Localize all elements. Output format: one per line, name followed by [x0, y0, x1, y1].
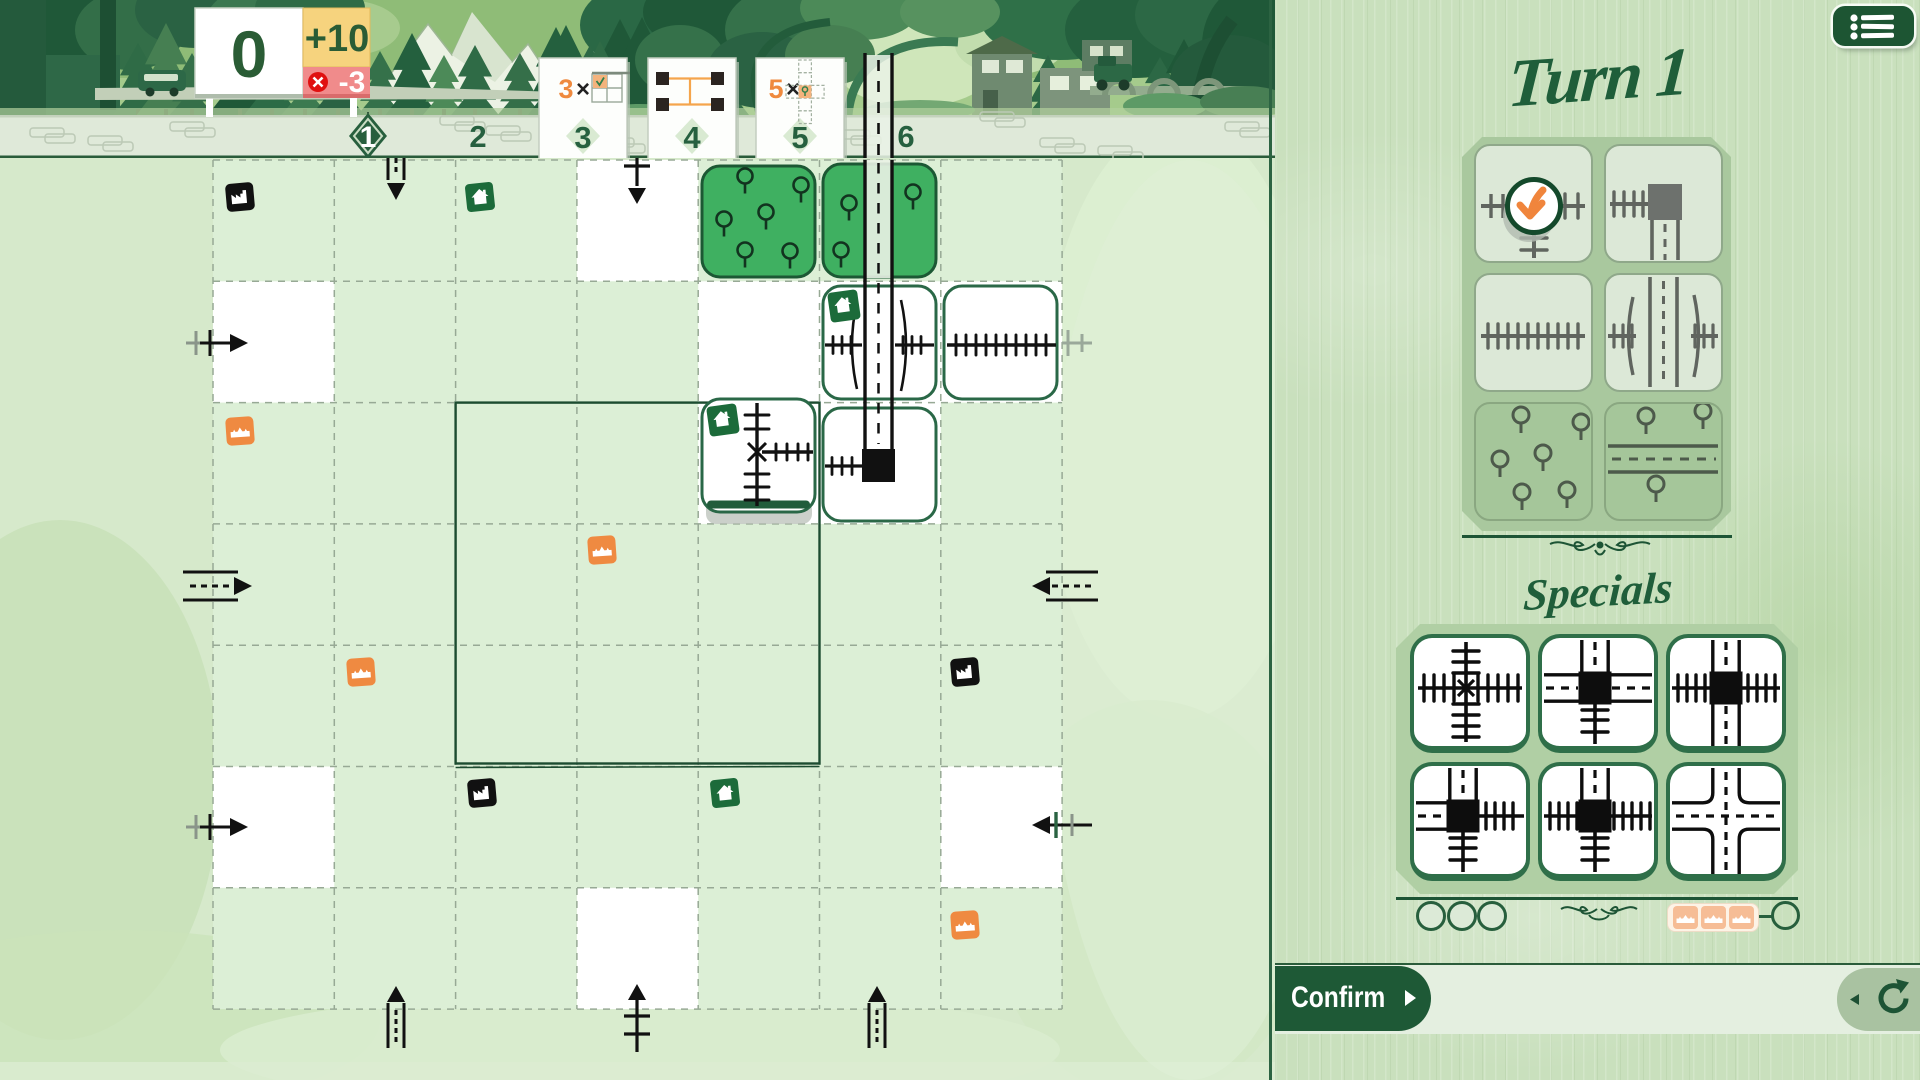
svg-text:-3: -3 [339, 66, 366, 99]
svg-text:×: × [576, 76, 590, 103]
svg-text:5: 5 [768, 74, 783, 104]
svg-text:4: 4 [683, 120, 701, 155]
svg-text:6: 6 [897, 119, 914, 154]
svg-text:3: 3 [574, 120, 591, 155]
svg-text:3: 3 [558, 74, 573, 104]
svg-text:+10: +10 [305, 18, 369, 60]
svg-text:1: 1 [360, 121, 377, 154]
svg-text:0: 0 [231, 17, 268, 91]
svg-text:×: × [786, 76, 800, 103]
svg-text:2: 2 [469, 119, 486, 154]
svg-text:5: 5 [791, 120, 808, 155]
